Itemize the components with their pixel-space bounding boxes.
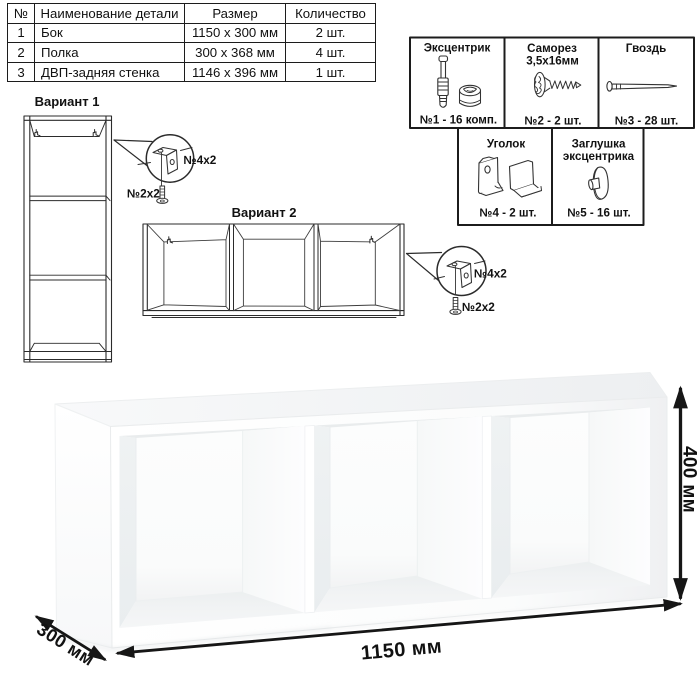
svg-text:№2 - 2 шт.: №2 - 2 шт. bbox=[525, 115, 582, 128]
svg-text:№4х2: №4х2 bbox=[184, 153, 217, 167]
svg-text:№4х2: №4х2 bbox=[474, 267, 507, 281]
svg-text:Уголок: Уголок bbox=[487, 138, 526, 151]
svg-text:Саморез: Саморез bbox=[527, 42, 577, 55]
svg-text:Эксцентрик: Эксцентрик bbox=[424, 42, 491, 55]
svg-text:1150 мм: 1150 мм bbox=[360, 635, 443, 664]
svg-text:№5 - 16 шт.: №5 - 16 шт. bbox=[567, 207, 630, 220]
svg-text:Вариант 2: Вариант 2 bbox=[232, 205, 297, 220]
svg-text:эксцентрика: эксцентрика bbox=[563, 150, 635, 163]
svg-text:№3 - 28 шт.: №3 - 28 шт. bbox=[615, 115, 678, 128]
svg-text:№2х2: №2х2 bbox=[462, 300, 495, 314]
svg-text:№4 - 2 шт.: №4 - 2 шт. bbox=[480, 207, 537, 220]
svg-text:3,5х16мм: 3,5х16мм bbox=[526, 55, 579, 68]
svg-text:Вариант 1: Вариант 1 bbox=[35, 94, 100, 109]
svg-text:Гвоздь: Гвоздь bbox=[626, 42, 666, 55]
svg-text:№2х2: №2х2 bbox=[127, 187, 160, 201]
svg-text:400 мм: 400 мм bbox=[679, 446, 700, 513]
svg-text:Заглушка: Заглушка bbox=[572, 138, 626, 151]
svg-text:№1 - 16 комп.: №1 - 16 комп. bbox=[420, 114, 497, 127]
